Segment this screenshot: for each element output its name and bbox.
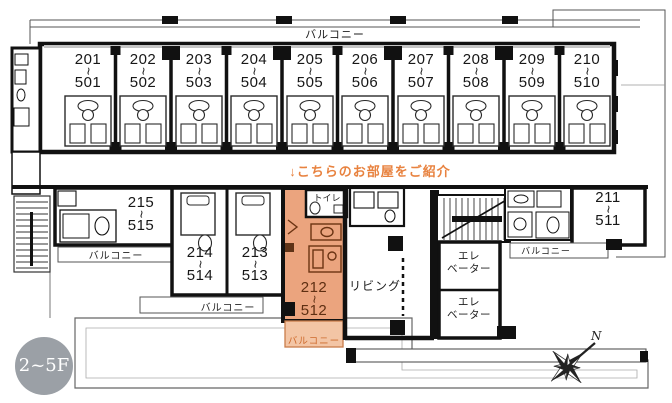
- living-label: リビング: [344, 277, 406, 294]
- room-label-212-512: 212 ~ 512: [290, 281, 338, 318]
- room-label-211-511: 211 ~ 511: [584, 191, 632, 228]
- room-number-tilde: ~: [250, 48, 259, 96]
- room-number-tilde: ~: [361, 48, 370, 96]
- room-number-tilde: ~: [472, 48, 481, 96]
- floor-plan: N バルコニー ↓こちらのお部屋をご紹介 トイレ リビング エレ ベーター エレ…: [0, 0, 672, 403]
- room-number-tilde: ~: [604, 186, 613, 234]
- room-number-tilde: ~: [306, 48, 315, 96]
- room-label-214-514: 214 ~ 514: [176, 246, 224, 283]
- room-number-tilde: ~: [84, 48, 93, 96]
- room-number-tilde: ~: [196, 241, 205, 289]
- room-number-tilde: ~: [583, 48, 592, 96]
- room-number-tilde: ~: [528, 48, 537, 96]
- room-label-213-513: 213 ~ 513: [231, 246, 279, 283]
- room-number-tilde: ~: [195, 48, 204, 96]
- room-number-tilde: ~: [139, 48, 148, 96]
- compass-north-label: N: [590, 329, 602, 343]
- balcony-label-top: バルコニー: [295, 26, 375, 42]
- room-label-207-507: 207 ~ 507: [397, 53, 445, 90]
- left-utility-column: [12, 48, 40, 194]
- elevator-label-2: エレ ベーター: [441, 296, 497, 321]
- balcony-label-211: バルコニー: [514, 244, 578, 257]
- room-number-tilde: ~: [137, 191, 146, 239]
- toilet-label: トイレ: [309, 191, 345, 204]
- balcony-label-215: バルコニー: [72, 247, 160, 262]
- elevator-label-1: エレ ベーター: [441, 250, 497, 275]
- room-label-215-515: 215 ~ 515: [117, 196, 165, 233]
- room-label-206-506: 206 ~ 506: [341, 53, 389, 90]
- room-label-209-509: 209 ~ 509: [508, 53, 556, 90]
- room-label-210-510: 210 ~ 510: [563, 53, 611, 90]
- room-label-208-508: 208 ~ 508: [452, 53, 500, 90]
- balcony-label-213: バルコニー: [182, 299, 274, 314]
- elevator-label-line2: ベーター: [441, 263, 497, 276]
- room-number-tilde: ~: [310, 276, 319, 324]
- room-label-203-503: 203 ~ 503: [175, 53, 223, 90]
- room-label-202-502: 202 ~ 502: [119, 53, 167, 90]
- elevator-label-line2: ベーター: [441, 309, 497, 322]
- room-label-201-501: 201 ~ 501: [64, 53, 112, 90]
- stairs-left: [14, 196, 50, 272]
- washroom-block: [350, 188, 404, 226]
- balcony-label-212: バルコニー: [286, 333, 342, 347]
- room-label-204-504: 204 ~ 504: [230, 53, 278, 90]
- room-number-tilde: ~: [417, 48, 426, 96]
- highlight-note: ↓こちらのお部屋をご紹介: [240, 161, 500, 180]
- floor-badge: 2~5F: [15, 337, 73, 395]
- room-number-tilde: ~: [251, 241, 260, 289]
- elevator-label-line1: エレ: [441, 250, 497, 263]
- room-label-205-505: 205 ~ 505: [286, 53, 334, 90]
- elevator-label-line1: エレ: [441, 296, 497, 309]
- compass-icon: N: [537, 329, 602, 397]
